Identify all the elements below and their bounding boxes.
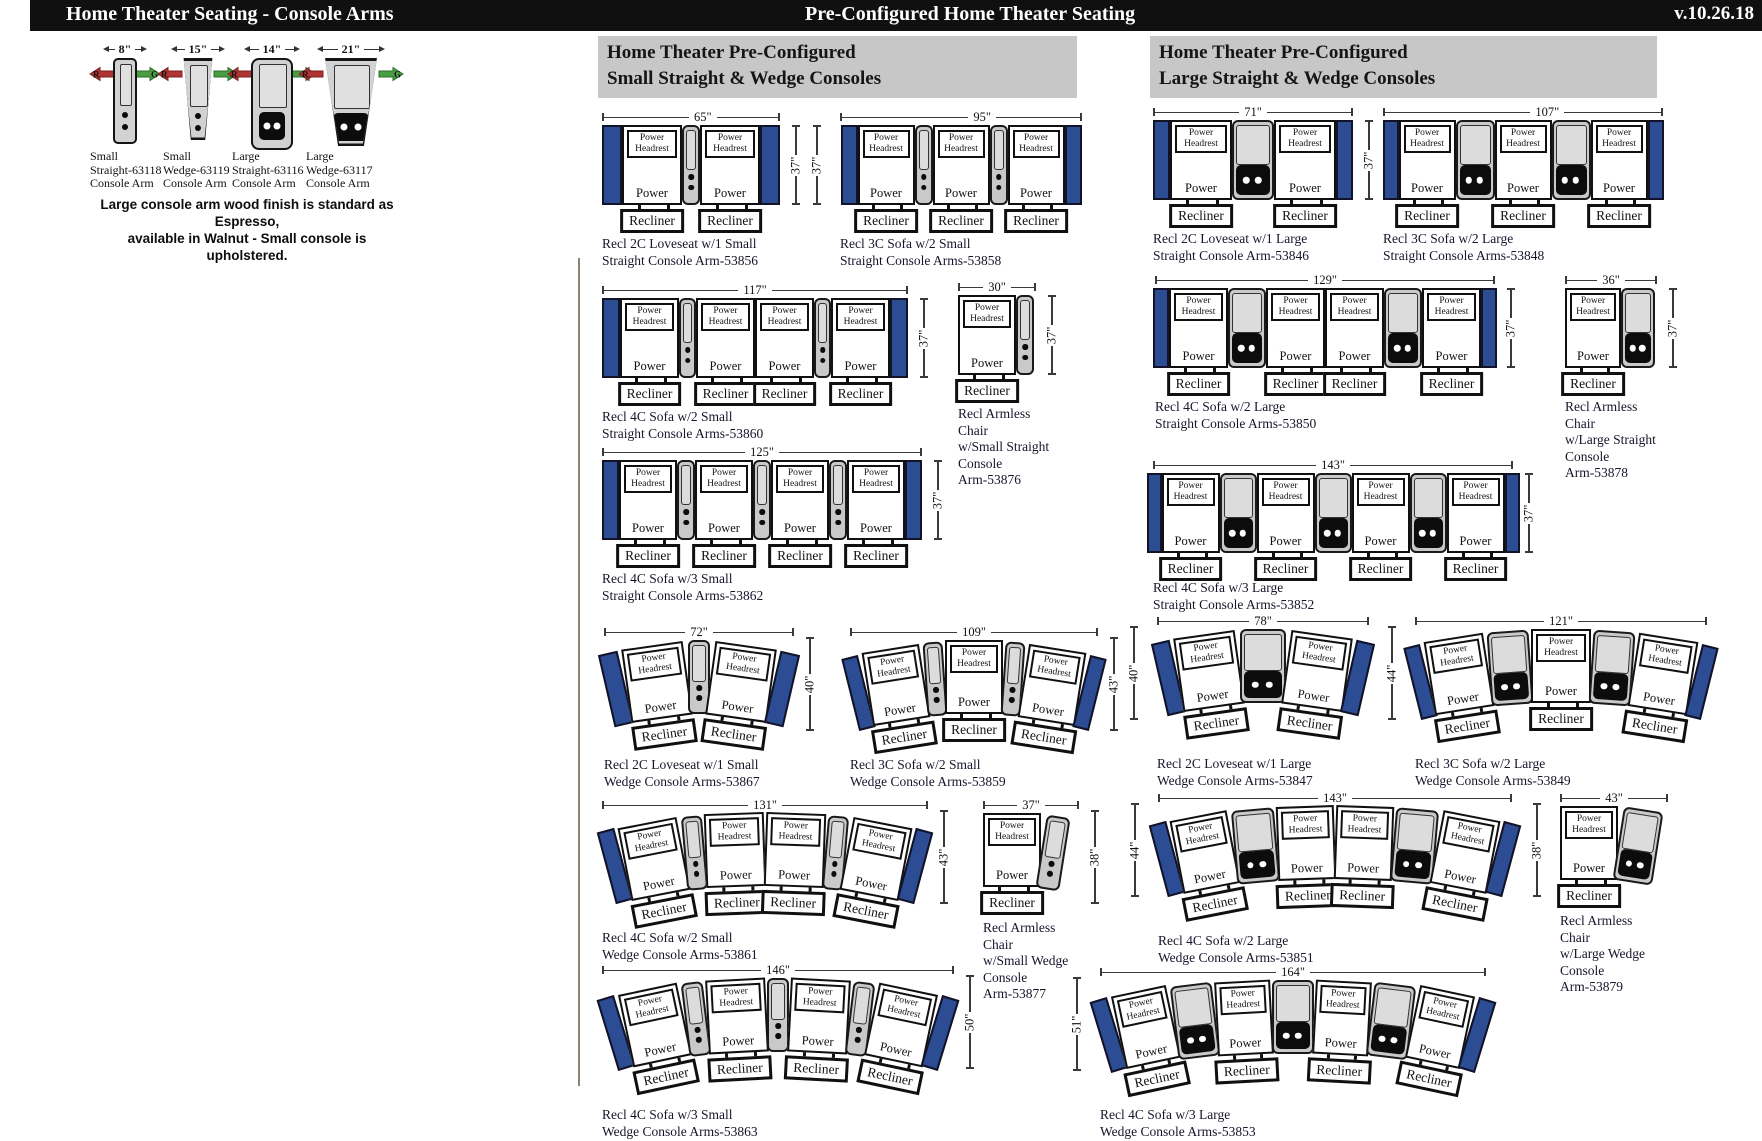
console-arm-label-line: Straight-63116: [232, 164, 304, 178]
height-dimension-label: 37": [913, 329, 934, 347]
console-large-body: [1232, 120, 1274, 200]
diagram-caption: Recl ArmlessChairw/Small StraightConsole…: [958, 406, 1049, 489]
power-headrest-label: PowerHeadrest: [1319, 985, 1366, 1015]
console-pad: [683, 303, 692, 343]
arm-panel: [1147, 473, 1162, 553]
seating-body: PowerHeadrestPowerReclinerPowerHeadrestP…: [602, 978, 954, 1070]
caption-line: Recl 4C Sofa w/2 Small: [602, 409, 763, 426]
power-headrest-line: Headrest: [1169, 492, 1213, 503]
console-pad: [692, 645, 706, 682]
cupholder-panel: [259, 112, 285, 140]
cupholder-dot: [996, 174, 1002, 180]
power-label: Power: [1259, 534, 1313, 549]
power-label: Power: [1183, 685, 1243, 708]
power-headrest-line: Power: [1264, 481, 1308, 492]
power-label: Power: [1284, 685, 1344, 708]
height-dimension: 37": [1360, 120, 1378, 200]
console-large-body: [1456, 120, 1495, 200]
seat: PowerHeadrestPowerRecliner: [1495, 120, 1552, 200]
diagram-caption: Recl 2C Loveseat w/1 LargeStraight Conso…: [1153, 231, 1309, 264]
caption-line: Wedge Console Arms-53853: [1100, 1124, 1256, 1141]
power-headrest-line: Headrest: [629, 144, 675, 155]
width-dimension: 30": [958, 282, 1036, 292]
config-diagram: 121"PowerHeadrestPowerReclinerPowerHeadr…: [1415, 616, 1707, 719]
seat: PowerHeadrestPowerRecliner: [1257, 473, 1315, 553]
power-headrest-line: Headrest: [1567, 825, 1611, 836]
power-label: Power: [960, 356, 1014, 371]
cupholder-panel: [1493, 672, 1529, 702]
console-large-body: [1315, 473, 1352, 553]
arm-panel: [890, 298, 908, 378]
seat-box: PowerHeadrestPower: [1531, 629, 1591, 703]
console-pad: [1491, 635, 1527, 674]
caption-line: w/Small Wedge: [983, 953, 1068, 970]
console-pad: [1224, 478, 1253, 518]
recliner-label: Recliner: [631, 718, 697, 751]
console-large: [1552, 120, 1591, 200]
cupholder-dot: [1378, 1035, 1385, 1042]
width-dimension-label: 164": [1276, 967, 1310, 977]
recliner-label: Recliner: [1273, 204, 1337, 228]
cupholder-dot: [1249, 345, 1256, 352]
seat: PowerHeadrestPowerRecliner: [1399, 120, 1456, 200]
cupholder-dot: [688, 174, 694, 180]
cupholder-dot: [1513, 683, 1520, 690]
power-headrest-line: Headrest: [952, 659, 996, 670]
console-small: [682, 125, 700, 205]
height-dimension: 43": [1105, 637, 1123, 731]
cupholder-dot: [1252, 681, 1259, 688]
caption-line: Wedge Console Arms-53859: [850, 774, 1006, 791]
seat-box: PowerHeadrestPower: [958, 295, 1016, 375]
console-pad: [1556, 125, 1587, 165]
width-dimension: 107": [1383, 107, 1663, 117]
diagram-caption: Recl 3C Sofa w/2 LargeWedge Console Arms…: [1415, 756, 1571, 789]
caption-line: Recl 4C Sofa w/3 Large: [1100, 1107, 1256, 1124]
power-headrest-line: Headrest: [1406, 139, 1449, 150]
recliner-label: Recliner: [698, 209, 762, 233]
console-arm-small-straight: [113, 58, 137, 144]
config-diagram: 72"PowerHeadrestPowerReclinerPowerHeadre…: [604, 627, 794, 726]
caption-line: Recl 4C Sofa w/3 Small: [602, 571, 763, 588]
seat-box: PowerHeadrestPower: [847, 460, 905, 540]
power-headrest-line: Power: [1502, 128, 1545, 139]
console-small: [915, 125, 933, 205]
power-headrest-label: PowerHeadrest: [1570, 293, 1616, 321]
cupholder-panel: [1236, 165, 1270, 195]
caption-line: Recl 2C Loveseat w/1 Large: [1157, 756, 1313, 773]
seat: PowerHeadrestPowerRecliner: [831, 298, 890, 378]
console-pad: [1319, 478, 1348, 518]
cupholder-dot: [1429, 530, 1436, 537]
cupholder-dot: [831, 871, 837, 877]
caption-line: w/Large Wedge: [1560, 946, 1645, 963]
power-label: Power: [849, 521, 903, 536]
console-pad: [1044, 820, 1066, 859]
console-arm-label-line: Console Arm: [90, 177, 162, 191]
cupholder-dot: [1573, 177, 1580, 184]
dimension-label: 15": [185, 44, 212, 54]
power-label: Power: [708, 867, 764, 884]
seat: PowerHeadrestPowerRecliner: [704, 812, 767, 888]
recliner-label: Recliner: [1159, 557, 1223, 581]
power-label: Power: [947, 695, 1001, 710]
seat: PowerHeadrestPowerRecliner: [1162, 473, 1220, 553]
seat-box: PowerHeadrestPower: [1565, 288, 1621, 368]
cupholder-dot: [1247, 862, 1254, 869]
width-dimension-label: 78": [1249, 616, 1277, 626]
caption-line: Recl 3C Sofa w/2 Small: [840, 236, 1001, 253]
recliner-label: Recliner: [1330, 883, 1395, 909]
console-small-body: [682, 125, 700, 205]
height-dimension-label: 44": [1124, 841, 1145, 859]
width-dimension: 78": [1157, 616, 1369, 626]
height-dimension: 37": [787, 125, 805, 205]
seat-box: PowerHeadrestPower: [1276, 805, 1337, 881]
seat: PowerHeadrestPowerRecliner: [705, 977, 769, 1054]
note-line: available in Walnut - Small console is u…: [96, 230, 398, 264]
config-diagram: 65"PowerHeadrestPowerReclinerPowerHeadre…: [602, 112, 780, 205]
seat: PowerHeadrestPowerRecliner: [1352, 473, 1410, 553]
width-dimension: 37": [983, 800, 1079, 810]
caption-line: Chair: [983, 937, 1068, 954]
cupholder-dot: [1009, 687, 1015, 693]
width-dimension: 143": [1158, 793, 1512, 803]
console-pad: [685, 986, 703, 1024]
power-label: Power: [1593, 181, 1646, 196]
diagram-caption: Recl 4C Sofa w/3 LargeWedge Console Arms…: [1100, 1107, 1256, 1140]
column-divider: [578, 258, 580, 1086]
width-dimension-label: 143": [1316, 460, 1350, 470]
caption-line: Wedge Console Arms-53861: [602, 947, 758, 964]
seating-body: PowerHeadrestPowerRecliner: [1565, 288, 1657, 368]
cupholder-dot: [759, 520, 765, 526]
cupholder-dot: [1562, 177, 1569, 184]
console-pad: [1388, 293, 1418, 333]
seat: PowerHeadrestPowerRecliner: [622, 125, 682, 205]
config-diagram: 36"PowerHeadrestPowerRecliner37"Recl Arm…: [1565, 275, 1657, 368]
cupholder-dot: [1466, 177, 1473, 184]
config-diagram: 37"PowerHeadrestPowerRecliner38"Recl Arm…: [983, 800, 1079, 890]
power-headrest-label: PowerHeadrest: [705, 130, 755, 158]
config-diagram: 129"PowerHeadrestPowerReclinerPowerHeadr…: [1155, 275, 1495, 368]
seating-body: PowerHeadrestPowerReclinerPowerHeadrestP…: [602, 298, 908, 378]
arm-panel: [1505, 473, 1520, 553]
cupholder-dot: [933, 687, 939, 693]
width-dimension-label: 36": [1597, 275, 1625, 285]
height-dimension-label: 37": [1358, 151, 1379, 169]
console-arm-label-line: Straight-63118: [90, 164, 162, 178]
console-pad: [1174, 987, 1212, 1028]
svg-text:R: R: [302, 70, 309, 80]
recliner-label: Recliner: [1349, 557, 1413, 581]
power-label: Power: [773, 521, 827, 536]
arm-upholstery: [602, 460, 619, 540]
arm-upholstery: [1153, 288, 1169, 368]
cupholder-dot: [856, 1027, 862, 1033]
power-headrest-label: PowerHeadrest: [1292, 636, 1347, 671]
console-pad: [1414, 478, 1443, 518]
cupholder-panel: [1394, 849, 1431, 879]
console-large: [1486, 630, 1533, 707]
console-large-body: [1220, 473, 1257, 553]
cupholder-dot: [1243, 177, 1250, 184]
width-dimension: 143": [1153, 460, 1513, 470]
power-headrest-line: Power: [838, 306, 883, 317]
width-dimension-label: 37": [1017, 800, 1045, 810]
power-label: Power: [757, 359, 812, 374]
recliner-label: Recliner: [768, 544, 832, 568]
seating-body: PowerHeadrestPowerReclinerPowerHeadrestP…: [850, 640, 1098, 730]
power-label: Power: [1276, 181, 1334, 196]
power-headrest-label: PowerHeadrest: [1418, 991, 1469, 1028]
console-large: [1315, 473, 1352, 553]
power-headrest-line: Power: [1332, 296, 1377, 307]
caption-line: Recl Armless: [1560, 913, 1645, 930]
caption-line: Console: [1560, 963, 1645, 980]
seat: PowerHeadrestPowerRecliner: [619, 460, 677, 540]
recliner-label: Recliner: [844, 544, 908, 568]
power-label: Power: [766, 867, 822, 884]
height-dimension-label: 50": [959, 1013, 980, 1031]
width-dimension: 72": [604, 627, 794, 637]
section-title-line: Small Straight & Wedge Consoles: [607, 66, 1077, 92]
seat-box: PowerHeadrestPower: [622, 125, 682, 205]
armrest-pad: [334, 65, 370, 109]
cupholder-dot: [1501, 684, 1508, 691]
height-dimension: 44": [1383, 626, 1401, 720]
power-headrest-line: Power: [1567, 814, 1611, 825]
seat: PowerHeadrestPowerRecliner: [983, 813, 1041, 887]
power-headrest-label: PowerHeadrest: [863, 130, 910, 158]
power-headrest-line: Power: [629, 133, 675, 144]
power-headrest-label: PowerHeadrest: [938, 130, 985, 158]
width-dimension-label: 129": [1308, 275, 1342, 285]
cupholder-dot: [820, 347, 826, 353]
console-small-body: [990, 125, 1008, 205]
console-large-body: [1621, 288, 1655, 368]
width-dimension: 8": [103, 44, 147, 54]
power-headrest-label: PowerHeadrest: [1167, 478, 1215, 506]
width-dimension-label: 143": [1318, 793, 1352, 803]
console-large: [1228, 288, 1266, 368]
console-small: [1016, 295, 1034, 375]
seat-box: PowerHeadrestPower: [695, 460, 753, 540]
recliner-label: Recliner: [705, 890, 770, 916]
seat: PowerHeadrestPowerRecliner: [1266, 288, 1325, 368]
caption-line: Wedge Console Arms-53863: [602, 1124, 758, 1141]
seat-box: PowerHeadrestPower: [620, 298, 679, 378]
console-pad: [1625, 293, 1651, 333]
cupholder-dot: [1022, 344, 1028, 350]
console-pad: [1007, 647, 1022, 685]
seat: PowerHeadrestPowerRecliner: [858, 125, 915, 205]
cupholder-dot: [1415, 861, 1422, 868]
diagram-caption: Recl 4C Sofa w/2 LargeStraight Console A…: [1155, 399, 1316, 432]
cupholder-dot: [1283, 1032, 1290, 1039]
caption-line: Chair: [1560, 930, 1645, 947]
power-headrest-label: PowerHeadrest: [1262, 478, 1310, 506]
power-headrest-label: PowerHeadrest: [776, 465, 824, 493]
power-headrest-line: Power: [1281, 128, 1329, 139]
cupholder-dot: [688, 185, 694, 191]
config-diagram: 131"PowerHeadrestPowerReclinerPowerHeadr…: [602, 800, 928, 903]
power-headrest-label: PowerHeadrest: [1427, 293, 1476, 321]
console-large-body: [1486, 630, 1533, 707]
console-pad: [771, 983, 785, 1020]
power-headrest-label: PowerHeadrest: [709, 817, 760, 847]
cupholder-dot: [1394, 345, 1401, 352]
dimension-label: 8": [115, 44, 136, 54]
console-large: [1612, 806, 1663, 885]
height-dimension-label: 43": [933, 848, 954, 866]
caption-line: Recl 3C Sofa w/2 Large: [1415, 756, 1571, 773]
cupholder-panel: [1238, 849, 1275, 879]
seating-body: PowerHeadrestPowerReclinerPowerHeadrestP…: [1155, 288, 1495, 368]
power-headrest-label: PowerHeadrest: [627, 130, 677, 158]
width-dimension-label: 43": [1600, 793, 1628, 803]
console-pad: [1244, 634, 1282, 671]
seat: PowerHeadrestPowerRecliner: [696, 298, 755, 378]
seat-box: PowerHeadrestPower: [787, 977, 851, 1054]
width-dimension-label: 121": [1544, 616, 1578, 626]
power-headrest-line: Headrest: [762, 317, 807, 328]
diagram-caption: Recl 3C Sofa w/2 LargeStraight Console A…: [1383, 231, 1544, 264]
seat-box: PowerHeadrestPower: [704, 812, 767, 888]
seating-body: PowerHeadrestPowerRecliner: [958, 295, 1036, 375]
console-large: [1232, 120, 1274, 200]
seat-box: PowerHeadrestPower: [621, 641, 693, 723]
cupholder-dot: [921, 174, 927, 180]
power-headrest-line: Power: [1538, 637, 1584, 648]
cupholder-panel: [1556, 165, 1587, 195]
power-label: Power: [1172, 181, 1230, 196]
seat: PowerHeadrestPowerRecliner: [945, 640, 1003, 714]
console-large: [1220, 473, 1257, 553]
width-dimension: 129": [1155, 275, 1495, 285]
cupholder-dot: [854, 1037, 860, 1043]
power-headrest-line: Headrest: [838, 317, 883, 328]
recliner-label: Recliner: [929, 209, 993, 233]
seat: PowerHeadrestPowerRecliner: [847, 460, 905, 540]
height-dimension-label: 37": [927, 491, 948, 509]
power-headrest-line: Headrest: [1176, 307, 1221, 318]
power-headrest-line: Headrest: [1281, 139, 1329, 150]
height-dimension: 40": [1125, 626, 1143, 720]
diagram-caption: Recl ArmlessChairw/Small WedgeConsoleArm…: [983, 920, 1068, 1003]
section-title-line: Home Theater Pre-Configured: [1159, 40, 1657, 66]
cupholder-dot: [775, 1023, 781, 1029]
console-small-body: [922, 641, 947, 716]
power-headrest-label: PowerHeadrest: [1639, 638, 1693, 673]
height-dimension-label: 37": [1041, 326, 1062, 344]
cupholder-dot: [685, 347, 691, 353]
caption-line: Straight Console Arms-53860: [602, 426, 763, 443]
recliner-label: Recliner: [761, 890, 826, 916]
power-headrest-label: PowerHeadrest: [700, 465, 748, 493]
power-headrest-label: PowerHeadrest: [1279, 125, 1331, 153]
recliner-label: Recliner: [854, 209, 918, 233]
cupholder-dot: [1405, 345, 1412, 352]
height-dimension-label: 51": [1066, 1015, 1087, 1033]
power-headrest-line: Power: [854, 468, 898, 479]
cupholder-dot: [1239, 530, 1246, 537]
seat-box: PowerHeadrestPower: [1008, 125, 1065, 205]
recliner-label: Recliner: [1010, 721, 1077, 755]
power-label: Power: [1432, 865, 1488, 890]
power-headrest-line: Power: [940, 133, 983, 144]
seating-body: PowerHeadrestPowerReclinerPowerHeadrestP…: [1415, 629, 1707, 719]
recliner-label: Recliner: [784, 1055, 849, 1082]
diagram-caption: Recl 4C Sofa w/3 SmallStraight Console A…: [602, 571, 763, 604]
power-label: Power: [1354, 534, 1408, 549]
power-headrest-line: Power: [702, 468, 746, 479]
seat: PowerHeadrestPowerRecliner: [787, 977, 851, 1054]
console-pad: [818, 303, 827, 343]
cupholder-dot: [1266, 681, 1273, 688]
recliner-label: Recliner: [942, 718, 1006, 742]
height-dimension: 37": [1520, 473, 1538, 553]
seat-box: PowerHeadrestPower: [858, 125, 915, 205]
height-dimension-label: 37": [1662, 319, 1683, 337]
power-headrest-line: Headrest: [703, 317, 748, 328]
power-label: Power: [1164, 534, 1218, 549]
width-dimension-label: 71": [1239, 107, 1267, 117]
cupholder-dot: [835, 520, 841, 526]
recliner-label: Recliner: [829, 382, 893, 406]
height-dimension: 38": [1086, 810, 1104, 904]
power-label: Power: [622, 359, 677, 374]
cupholder-panel: [1370, 1024, 1407, 1055]
cupholder-dot: [835, 509, 841, 515]
power-headrest-line: Headrest: [778, 479, 822, 490]
power-headrest-label: PowerHeadrest: [710, 983, 761, 1014]
console-arm-label: SmallStraight-63118Console Arm: [90, 150, 162, 191]
cupholder-dot: [1199, 1035, 1206, 1042]
power-headrest-line: Headrest: [1502, 139, 1545, 150]
power-headrest-label: PowerHeadrest: [1013, 130, 1060, 158]
power-headrest-line: Headrest: [1429, 307, 1474, 318]
cupholder-dot: [1022, 355, 1028, 361]
power-headrest-label: PowerHeadrest: [1117, 991, 1168, 1028]
caption-line: Arm-53879: [1560, 979, 1645, 996]
power-headrest-label: PowerHeadrest: [1596, 125, 1643, 153]
seat: PowerHeadrestPowerRecliner: [1560, 806, 1618, 880]
diagram-caption: Recl ArmlessChairw/Large StraightConsole…: [1565, 399, 1656, 482]
power-headrest-label: PowerHeadrest: [627, 647, 682, 682]
console-pad: [686, 130, 696, 170]
power-label: Power: [985, 868, 1039, 883]
console-large: [1410, 473, 1447, 553]
console-small-body: [677, 460, 695, 540]
console-large-body: [1240, 629, 1286, 703]
config-diagram: 71"PowerHeadrestPowerReclinerPowerHeadre…: [1153, 107, 1353, 200]
power-label: Power: [624, 186, 680, 201]
config-diagram: 30"PowerHeadrestPowerRecliner37"Recl Arm…: [958, 282, 1036, 375]
cupholder-dot: [1613, 683, 1620, 690]
power-headrest-label: PowerHeadrest: [1452, 478, 1500, 506]
cupholder-dot: [683, 509, 689, 515]
console-pad: [681, 465, 691, 505]
cupholder-dot: [695, 1037, 701, 1043]
arm-upholstery: [760, 125, 780, 205]
cupholder-dot: [1238, 345, 1245, 352]
power-headrest-line: Power: [952, 648, 996, 659]
config-diagram: 146"PowerHeadrestPowerReclinerPowerHeadr…: [602, 965, 954, 1070]
config-diagram: 143"PowerHeadrestPowerReclinerPowerHeadr…: [1158, 793, 1512, 896]
seat-box: PowerHeadrestPower: [1334, 805, 1395, 881]
power-headrest-line: Headrest: [1015, 144, 1058, 155]
